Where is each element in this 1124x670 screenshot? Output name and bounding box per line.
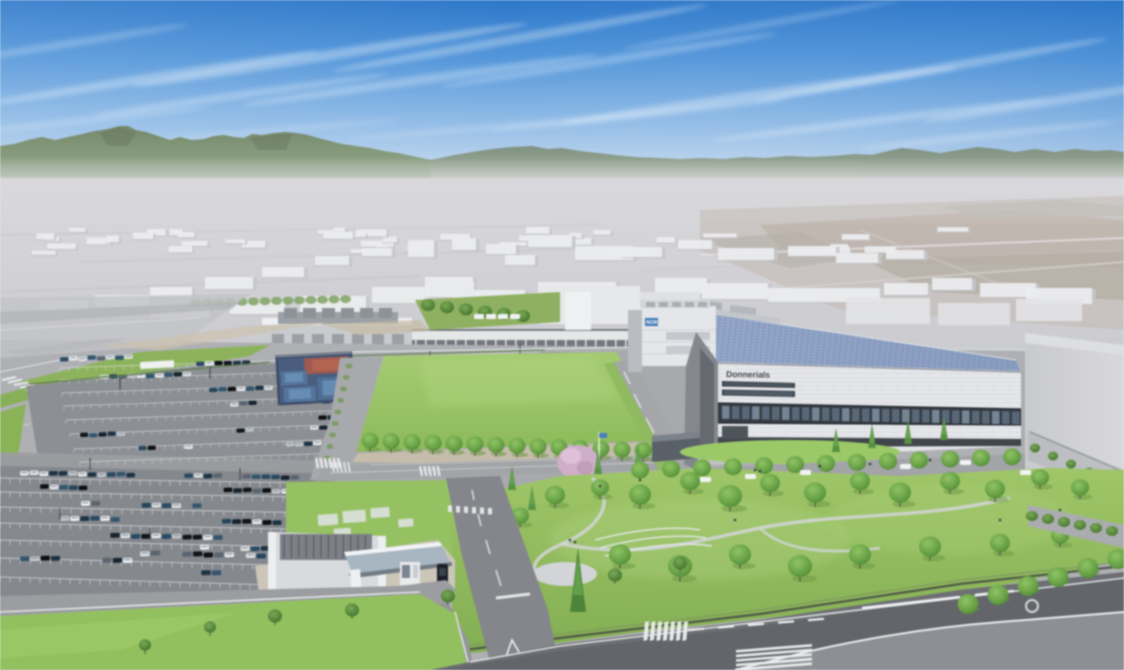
svg-text:Donnerials: Donnerials: [726, 369, 770, 380]
svg-text:NOK: NOK: [646, 320, 658, 326]
